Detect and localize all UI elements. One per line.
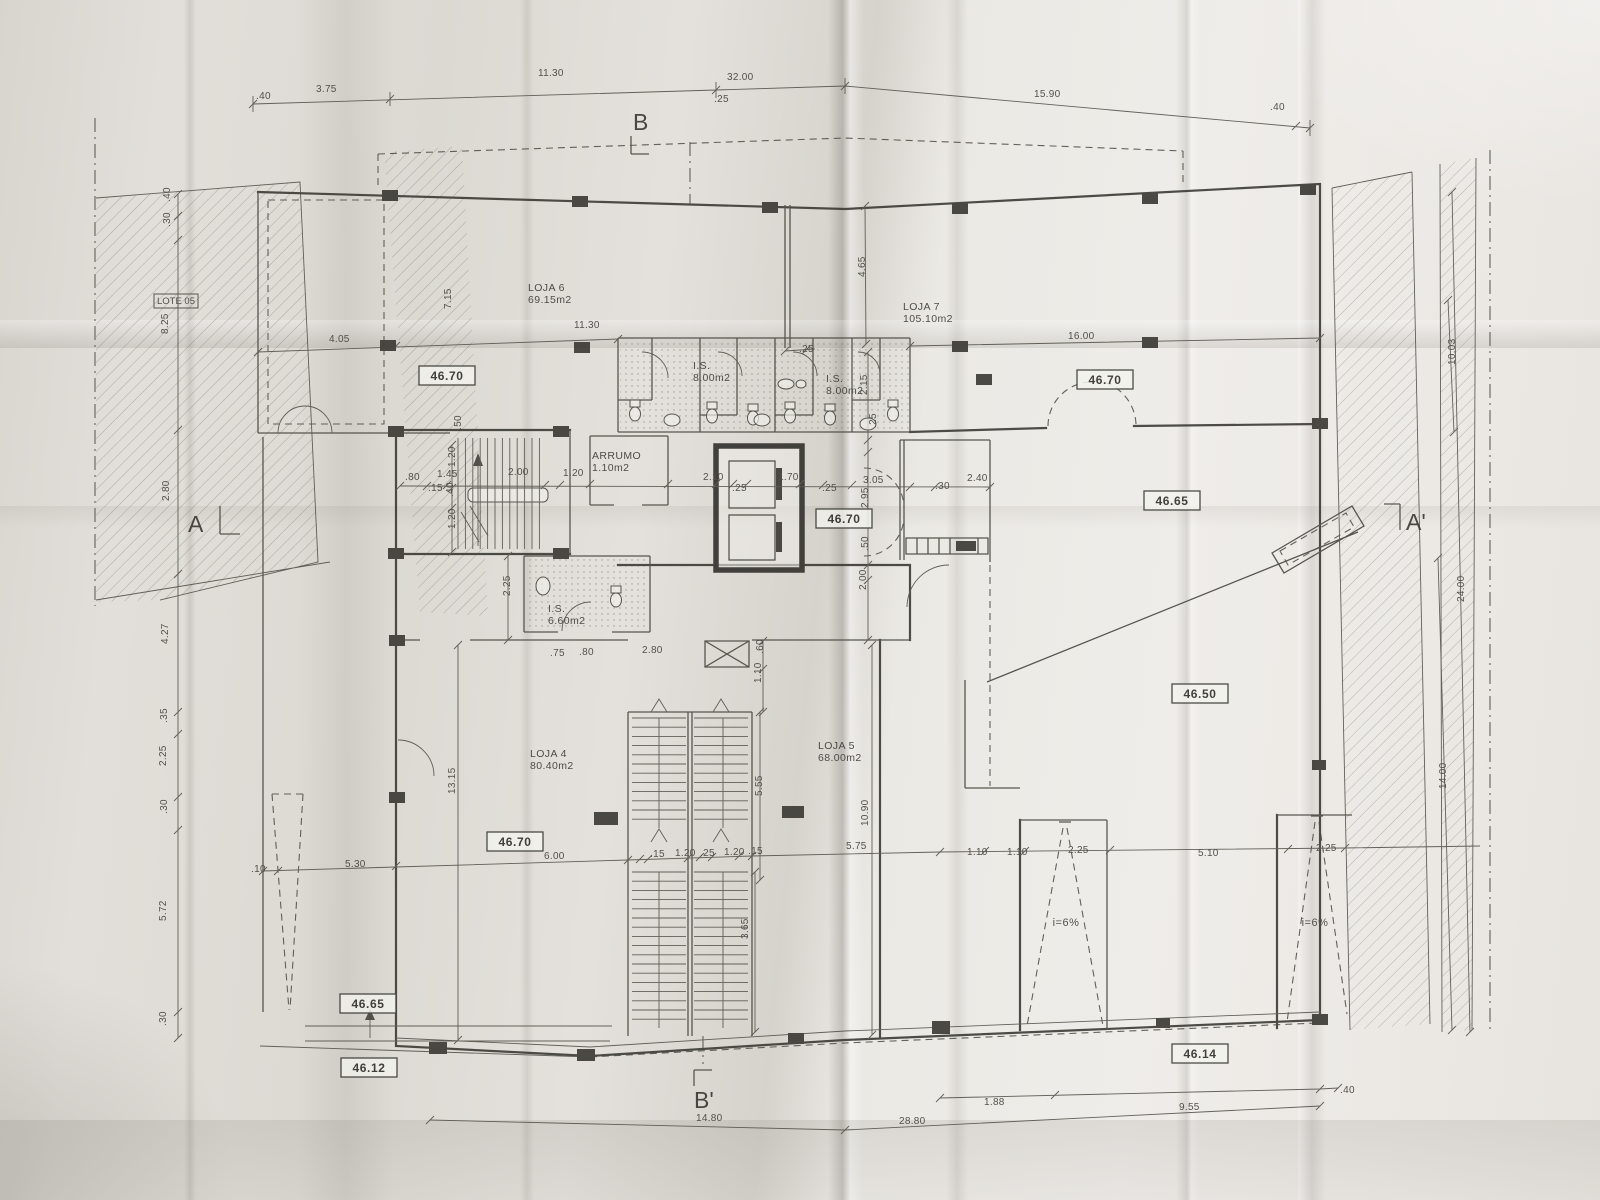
dim-label: 2.95 (860, 487, 871, 508)
dim-label: 2.25 (1068, 845, 1089, 856)
room-label-loja7: LOJA 7 (903, 301, 940, 313)
dim-label: .30 (159, 799, 170, 814)
dim-label: .75 (550, 648, 565, 659)
dim-label: 2.25 (1316, 843, 1337, 854)
dim-label: .40 (162, 187, 173, 202)
dim-label: 2.25 (158, 745, 169, 766)
ramp-slope-label: i=6% (1053, 917, 1080, 929)
folded-blueprint-photo: LOJA 6 69.15m2 LOJA 7 105.10m2 LOJA 4 80… (0, 0, 1600, 1200)
dim-label: 1.45 (437, 469, 458, 480)
dim-label: 14.00 (1438, 762, 1449, 789)
dim-label: 5.30 (345, 859, 366, 870)
dim-label: .30 (158, 1011, 169, 1026)
svg-text:46.14: 46.14 (1183, 1047, 1216, 1061)
room-label-is2: I.S. (826, 373, 843, 385)
svg-text:46.65: 46.65 (1155, 494, 1188, 508)
stair-treads (458, 438, 748, 1019)
dim-label: .50 (860, 536, 871, 551)
level-marker: 46.70 (419, 366, 475, 385)
dimension-labels: .403.7511.3032.00.2515.90.40.40.308.252.… (158, 68, 1467, 1127)
dim-label: .15 (748, 846, 763, 857)
level-marker: 46.65 (340, 994, 396, 1013)
dim-label: 28.80 (899, 1116, 926, 1127)
dim-label: 3.65 (740, 918, 751, 939)
dim-label: .25 (799, 344, 814, 355)
dim-label: .50 (453, 415, 464, 430)
dim-label: .10 (251, 864, 266, 875)
dim-label: 2.10 (703, 472, 724, 483)
pillar-loja4 (594, 812, 618, 825)
room-area-arrumo: 1.10m2 (592, 462, 629, 474)
counter-detail (956, 541, 976, 551)
svg-text:46.65: 46.65 (351, 997, 384, 1011)
section-marker-a-prime: A' (1406, 509, 1426, 535)
svg-text:46.70: 46.70 (1088, 373, 1121, 387)
dim-label: .15 (428, 483, 443, 494)
elevator-shaft (716, 446, 802, 570)
dim-label: .25 (732, 483, 747, 494)
dim-label: 6.00 (544, 851, 565, 862)
dim-label: .40 (1270, 102, 1285, 113)
dim-label: 5.75 (846, 841, 867, 852)
dim-label: .25 (700, 848, 715, 859)
dim-label: .80 (405, 472, 420, 483)
room-label-loja4: LOJA 4 (530, 748, 567, 760)
section-marker-b-prime: B' (694, 1087, 714, 1113)
dim-label: 1.10 (1007, 847, 1028, 858)
structural-columns (380, 184, 1328, 1061)
thin-lines (260, 718, 1320, 1057)
level-marker: 46.70 (816, 509, 872, 528)
section-marker-b: B (633, 109, 648, 135)
dim-label: 11.30 (574, 320, 600, 331)
dim-label: 2.80 (161, 480, 172, 501)
dim-label: 4.27 (160, 623, 171, 644)
room-area-loja6: 69.15m2 (528, 294, 572, 306)
dim-label: 1.20 (675, 848, 696, 859)
svg-text:46.12: 46.12 (352, 1061, 385, 1075)
level-marker: 46.14 (1172, 1044, 1228, 1063)
room-area-is3: 6.60m2 (548, 615, 585, 627)
dim-label: .80 (579, 647, 594, 658)
dim-label: 2.00 (508, 467, 529, 478)
dim-label: 11.30 (538, 68, 564, 79)
dim-label: 16.00 (1068, 331, 1095, 342)
dim-label: 1.20 (563, 468, 584, 479)
dim-label: .40 (1340, 1085, 1355, 1096)
room-area-is2: 8.00m2 (826, 385, 863, 397)
level-marker: 46.65 (1144, 491, 1200, 510)
dim-label: 10.90 (860, 799, 871, 826)
room-label-loja6: LOJA 6 (528, 282, 565, 294)
dim-label: 2.25 (502, 575, 513, 596)
dimension-ticks (174, 82, 1474, 1134)
room-label-loja5: LOJA 5 (818, 740, 855, 752)
dim-label: 1.10 (967, 847, 988, 858)
dim-label: 3.75 (316, 84, 337, 95)
dim-label: 1.88 (984, 1097, 1005, 1108)
dim-label: 2.00 (858, 569, 869, 590)
property-boundary-lines (95, 118, 1490, 1064)
room-label-is1: I.S. (693, 360, 710, 372)
dim-label: 10.03 (1447, 338, 1458, 365)
dim-label: 1.20 (447, 446, 458, 467)
svg-text:46.70: 46.70 (430, 369, 463, 383)
level-marker: 46.12 (341, 1058, 397, 1077)
dim-label: 13.15 (447, 767, 458, 794)
svg-text:LOTE 05: LOTE 05 (157, 296, 195, 307)
dim-label: .15 (650, 849, 665, 860)
dim-label: 4.05 (329, 334, 350, 345)
dim-label: 4.65 (857, 256, 868, 277)
dim-label: .25 (714, 94, 729, 105)
svg-text:46.70: 46.70 (498, 835, 531, 849)
lot-label: LOTE 05 (154, 294, 198, 308)
dim-label: 5.55 (754, 775, 765, 796)
dim-label: 3.05 (863, 475, 884, 486)
level-marker: 46.70 (487, 832, 543, 851)
dim-label: 2.80 (642, 645, 663, 656)
dim-label: .40 (256, 91, 271, 102)
dim-label: 1.70 (778, 472, 799, 483)
svg-text:46.70: 46.70 (827, 512, 860, 526)
dim-label: 1.20 (724, 847, 745, 858)
dim-label: .40 (445, 482, 456, 497)
dim-label: 7.15 (443, 288, 454, 309)
floor-plan-drawing: LOJA 6 69.15m2 LOJA 7 105.10m2 LOJA 4 80… (0, 0, 1600, 1200)
dim-label: 1.20 (447, 508, 458, 529)
dim-label: .30 (162, 212, 173, 227)
dim-label: 5.72 (158, 900, 169, 921)
dim-label: .25 (822, 483, 837, 494)
pillar-loja5 (782, 806, 804, 818)
room-label-is3: I.S. (548, 603, 565, 615)
dim-label: 2.40 (967, 473, 988, 484)
ramp-slope-label: i=6% (1302, 917, 1329, 929)
room-label-arrumo: ARRUMO (592, 450, 641, 462)
dim-label: 1.10 (753, 662, 764, 683)
room-area-loja7: 105.10m2 (903, 313, 953, 325)
room-area-loja4: 80.40m2 (530, 760, 574, 772)
level-marker: 46.70 (1077, 370, 1133, 389)
dim-label: .35 (159, 708, 170, 723)
section-markers: B B' A A' (188, 109, 1426, 1113)
room-area-loja5: 68.00m2 (818, 752, 862, 764)
dim-label: .25 (868, 413, 879, 428)
dim-label: .30 (935, 481, 950, 492)
dim-label: .60 (755, 639, 766, 654)
dim-label: 14.80 (696, 1113, 723, 1124)
dim-label: 15.90 (1034, 89, 1061, 100)
svg-text:46.50: 46.50 (1183, 687, 1216, 701)
dim-label: 32.00 (727, 72, 754, 83)
dim-label: 24.00 (1456, 575, 1467, 602)
level-marker: 46.50 (1172, 684, 1228, 703)
room-area-is1: 8.00m2 (693, 372, 730, 384)
dimension-lines (178, 78, 1480, 1130)
dim-label: 2.15 (859, 374, 870, 395)
dim-label: 8.25 (160, 313, 171, 334)
dim-label: 5.10 (1198, 848, 1219, 859)
section-marker-a: A (188, 511, 204, 537)
dim-label: 9.55 (1179, 1102, 1200, 1113)
